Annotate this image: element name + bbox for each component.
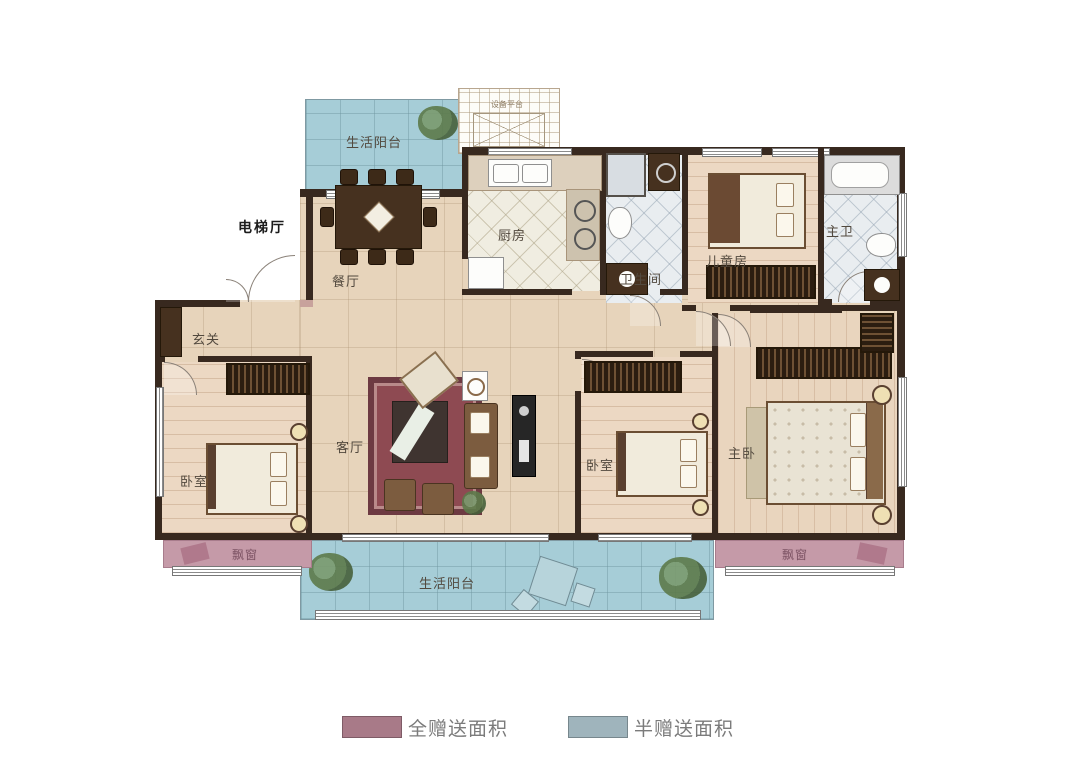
bay-window-right-label: 飘窗	[782, 546, 808, 563]
window-icon	[898, 193, 907, 257]
legend-label-full-gift: 全赠送面积	[408, 714, 508, 741]
bedroom-left-label: 卧室	[180, 471, 208, 490]
pillow	[850, 413, 866, 447]
window-icon	[898, 377, 907, 487]
toilet-icon	[608, 207, 632, 239]
pillow	[270, 481, 287, 506]
plant-icon	[309, 553, 353, 591]
window-icon	[172, 566, 302, 576]
blanket	[710, 175, 740, 243]
shoe-cabinet	[160, 307, 182, 357]
pillow	[776, 213, 794, 237]
armchair	[384, 479, 416, 511]
entry-door-icon	[248, 255, 295, 302]
equipment-platform-label: 设备平台	[491, 99, 523, 110]
window-icon	[702, 148, 762, 157]
wall	[712, 533, 905, 540]
elevator-hall-label: 电梯厅	[238, 217, 286, 237]
kids-bed	[708, 173, 806, 249]
dining-chair	[396, 249, 414, 265]
wall	[818, 299, 832, 305]
wall	[581, 351, 653, 357]
wall	[575, 391, 581, 540]
legend: 全赠送面积 半赠送面积	[342, 712, 762, 742]
window-icon	[725, 566, 895, 576]
tub-basin	[831, 162, 889, 188]
tv-item	[519, 406, 529, 416]
cushion	[470, 456, 490, 478]
dining-chair	[396, 169, 414, 185]
cushion	[470, 412, 490, 434]
legend-swatch-full-gift	[342, 716, 402, 738]
plant-icon	[418, 106, 458, 140]
wall	[712, 313, 718, 540]
balcony-bottom: 生活阳台	[300, 540, 714, 620]
equipment-x-icon	[473, 113, 545, 147]
legend-label-half-gift: 半赠送面积	[634, 714, 734, 741]
washer-drum	[656, 163, 676, 183]
tv-console	[512, 395, 536, 477]
sliding-door-icon	[342, 534, 549, 542]
wall	[680, 351, 712, 357]
balcony-top-label: 生活阳台	[346, 132, 402, 151]
balcony-bottom-label: 生活阳台	[419, 573, 475, 592]
master-bed	[766, 401, 886, 505]
pillow	[680, 465, 697, 488]
nightstand-lamp-icon	[872, 385, 892, 405]
foyer-label: 玄关	[192, 329, 220, 348]
pillow	[270, 452, 287, 477]
wall-accent	[300, 300, 313, 307]
living-label: 客厅	[336, 437, 364, 456]
footboard	[618, 433, 626, 491]
wardrobe	[226, 363, 310, 395]
bedroom-mid-label: 卧室	[586, 455, 614, 474]
nightstand-lamp-icon	[290, 423, 308, 441]
nightstand-lamp-icon	[872, 505, 892, 525]
sink-bowl	[493, 164, 519, 183]
basin	[874, 277, 890, 293]
sofa	[464, 403, 498, 489]
bay-window-right: 飘窗	[715, 540, 904, 568]
floorplan-page: 生活阳台 设备平台 生活阳台 飘窗 飘窗	[0, 0, 1080, 764]
washer-icon	[648, 153, 680, 191]
bay-window-left-label: 飘窗	[232, 546, 258, 563]
kids-wardrobe	[706, 265, 816, 299]
nightstand-lamp-icon	[692, 413, 709, 430]
plant-icon	[659, 557, 707, 599]
footboard	[208, 445, 216, 509]
nightstand-lamp-icon	[692, 499, 709, 516]
bed	[206, 443, 298, 515]
floorplan: 生活阳台 设备平台 生活阳台 飘窗 飘窗	[150, 85, 915, 620]
side-table	[462, 371, 488, 401]
wall	[462, 289, 572, 295]
fridge-icon	[468, 257, 504, 289]
wardrobe	[860, 313, 894, 353]
kitchen-sink-icon	[488, 159, 552, 187]
dining-chair	[340, 249, 358, 265]
window-icon	[315, 610, 701, 620]
kitchen-label: 厨房	[498, 225, 526, 244]
window-icon	[156, 387, 164, 497]
pillow	[680, 439, 697, 462]
headboard	[866, 403, 883, 499]
wall	[198, 356, 310, 362]
pillow	[776, 183, 794, 207]
wardrobe	[584, 361, 682, 393]
bathtub-icon	[824, 155, 900, 195]
table-centerpiece	[363, 201, 394, 232]
pillow	[850, 457, 866, 491]
shower-icon	[606, 153, 646, 197]
bay-window-left: 飘窗	[163, 540, 312, 568]
kids-room-label: 儿童房	[706, 251, 748, 270]
cushion	[857, 542, 888, 564]
wall	[155, 533, 310, 540]
burner	[574, 200, 596, 222]
dining-chair	[368, 249, 386, 265]
legend-swatch-half-gift	[568, 716, 628, 738]
dining-chair	[368, 169, 386, 185]
master-bath-label: 主卫	[826, 221, 854, 240]
table-glass	[390, 403, 435, 460]
wall	[682, 147, 688, 295]
wall	[750, 307, 842, 313]
cushion	[180, 542, 209, 565]
toilet-icon	[866, 233, 896, 257]
entry-door-leaf-icon	[226, 279, 249, 302]
nightstand-lamp-icon	[290, 515, 308, 533]
wall	[306, 189, 313, 300]
wall	[682, 305, 696, 311]
master-bedroom-label: 主卧	[728, 443, 756, 462]
bath-vanity	[864, 269, 900, 301]
dining-chair	[320, 207, 334, 227]
bed	[616, 431, 708, 497]
balcony-chair	[570, 582, 595, 607]
plant-icon	[462, 491, 486, 515]
coffee-table	[392, 401, 448, 463]
ornament	[467, 378, 485, 396]
bathroom-label: 卫生间	[620, 269, 662, 288]
dining-chair	[340, 169, 358, 185]
dining-table	[335, 185, 422, 249]
window-icon	[598, 534, 692, 542]
dining-label: 餐厅	[332, 271, 360, 290]
sink-bowl	[522, 164, 548, 183]
dining-chair	[423, 207, 437, 227]
stove-icon	[566, 189, 600, 261]
armchair	[422, 483, 454, 515]
burner	[574, 228, 596, 250]
equipment-platform: 设备平台	[458, 88, 560, 154]
tv-item	[519, 440, 529, 462]
